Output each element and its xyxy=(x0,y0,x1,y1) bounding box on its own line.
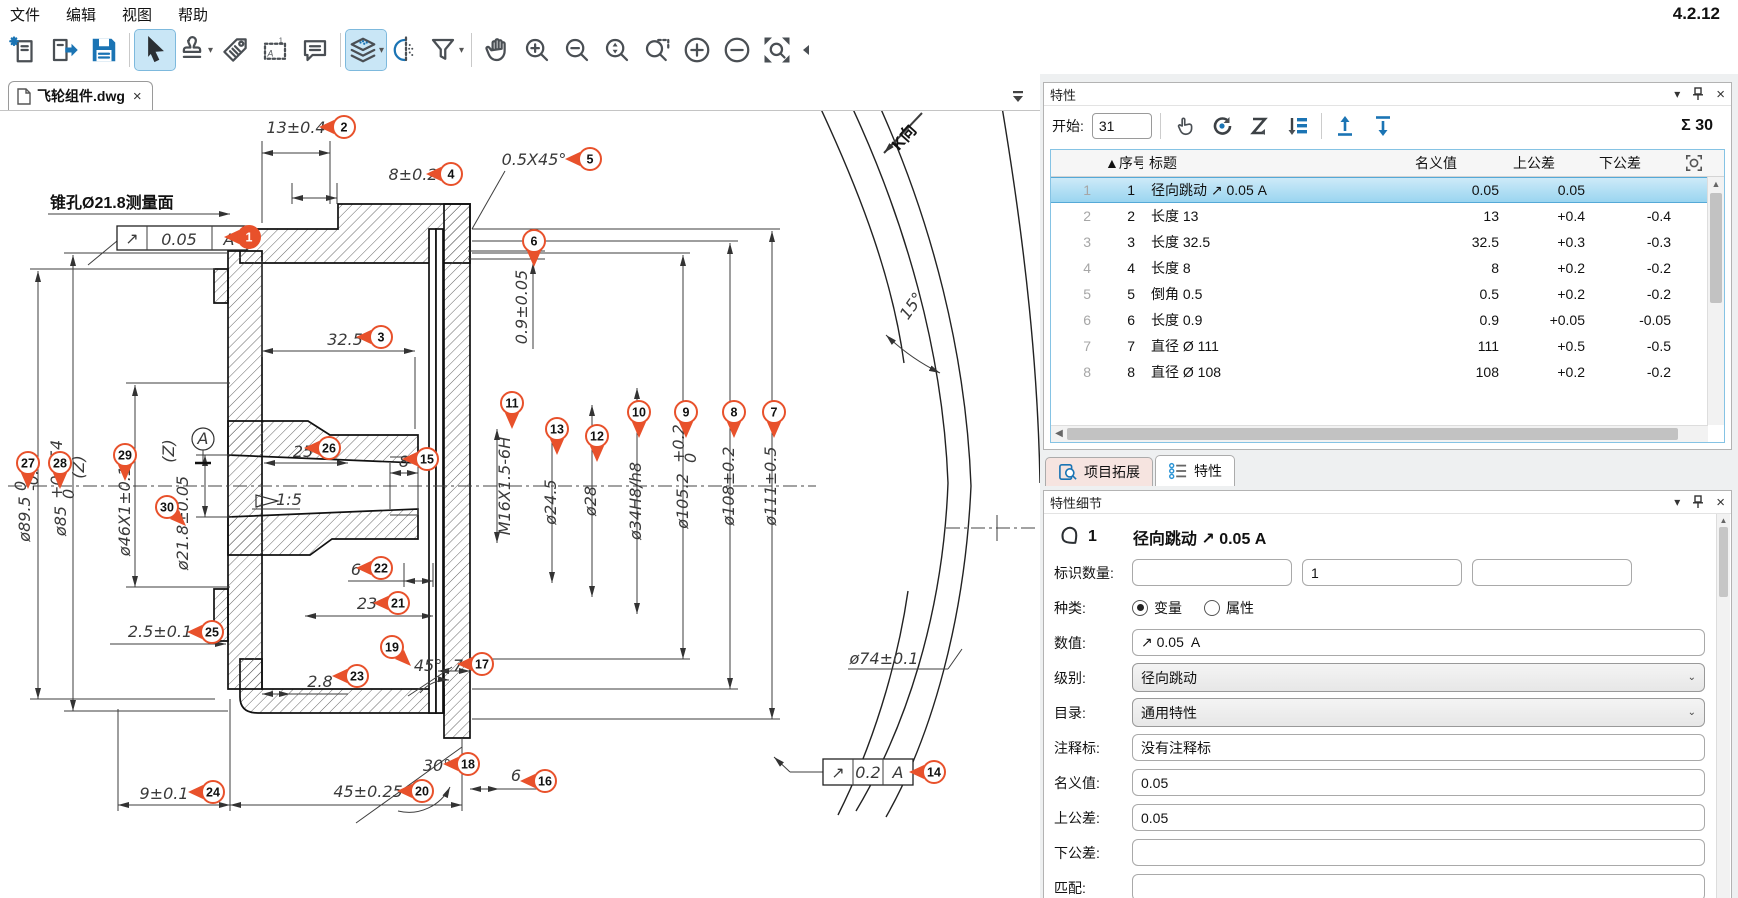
select-cursor-icon xyxy=(140,35,170,65)
balloon-10[interactable]: 10 xyxy=(628,401,650,438)
increase-button[interactable] xyxy=(677,30,717,70)
characteristics-panel-titlebar: 特性 ▾ × xyxy=(1044,83,1731,106)
characteristics-list-icon xyxy=(1168,462,1188,480)
zoom-selection-icon xyxy=(602,35,632,65)
pick-hand-icon xyxy=(1173,115,1195,137)
zoom-in-icon xyxy=(522,35,552,65)
import-down-button[interactable] xyxy=(1368,112,1398,140)
balloon-21[interactable]: 21 xyxy=(373,592,409,614)
dim-text: 45±0.25 xyxy=(333,782,402,801)
column-seq[interactable]: ▲序号 xyxy=(1099,150,1143,176)
table-row-8[interactable]: 88直径 Ø 108108+0.2-0.2 xyxy=(1051,359,1724,385)
dim-text: 45° xyxy=(414,656,442,675)
table-horizontal-scrollbar[interactable]: ◀ xyxy=(1051,425,1708,442)
dim-text: ø24.5 xyxy=(541,479,560,525)
renumber-list-button[interactable] xyxy=(1283,112,1313,140)
balloon-23[interactable]: 23 xyxy=(332,665,368,687)
renumber-zigzag-button[interactable] xyxy=(1245,112,1275,140)
start-number-input[interactable] xyxy=(1092,113,1152,139)
region-note-tool-button[interactable]: A 1 xyxy=(255,30,295,70)
svg-text:9: 9 xyxy=(683,406,690,420)
catalog-select[interactable]: 通用特性⌄ xyxy=(1132,698,1705,727)
stamp-dropdown-caret[interactable]: ▾ xyxy=(208,45,213,56)
layers-icon xyxy=(348,35,378,65)
dim-text: 6 xyxy=(511,766,521,785)
column-upper[interactable]: 上公差 xyxy=(1507,150,1593,176)
dim-text: (Z) xyxy=(69,455,88,478)
svg-text:19: 19 xyxy=(385,641,399,655)
decrease-button[interactable] xyxy=(717,30,757,70)
match-input[interactable] xyxy=(1132,874,1705,898)
svg-text:10: 10 xyxy=(632,406,646,420)
dim-text: M16X1.5-6H xyxy=(495,437,514,536)
pan-hand-icon xyxy=(482,35,512,65)
balloon-13[interactable]: 13 xyxy=(546,418,568,455)
balloon-7[interactable]: 7 xyxy=(763,401,785,438)
dim-text: ø34H8/h8 xyxy=(626,462,645,541)
increase-icon xyxy=(682,35,712,65)
dim-text: 13±0.4 xyxy=(266,118,325,137)
pan-hand-button[interactable] xyxy=(477,30,517,70)
svg-text:13: 13 xyxy=(550,423,564,437)
document-tab-title: 飞轮组件.dwg xyxy=(37,86,125,106)
dim-text: ø85 xyxy=(51,506,70,537)
detail-panel-title: 特性细节 xyxy=(1050,493,1102,512)
column-lower[interactable]: 下公差 xyxy=(1593,150,1679,176)
dim-text: ø105.2 xyxy=(673,473,692,530)
table-row-5[interactable]: 55倒角 0.50.5+0.2-0.2 xyxy=(1051,281,1724,307)
balloon-12[interactable]: 12 xyxy=(586,425,608,462)
collapse-toolbar-button[interactable] xyxy=(797,30,815,70)
pick-hand-button[interactable] xyxy=(1169,112,1199,140)
svg-text:1: 1 xyxy=(279,36,283,45)
renumber-rotate-button[interactable] xyxy=(1207,112,1237,140)
region-note-icon: A 1 xyxy=(260,35,290,65)
svg-text:17: 17 xyxy=(475,658,489,672)
dim-text: 0.9±0.05 xyxy=(512,270,531,344)
export-up-button[interactable] xyxy=(1330,112,1360,140)
column-title[interactable]: 标题 xyxy=(1143,150,1409,176)
svg-text:28: 28 xyxy=(53,457,67,471)
table-row-1[interactable]: 11径向跳动 ↗ 0.05 A0.050.05 xyxy=(1051,177,1724,203)
svg-text:7: 7 xyxy=(771,406,778,420)
k-view-arcs xyxy=(820,111,1040,817)
new-document-icon xyxy=(9,35,39,65)
lower-tolerance-input[interactable] xyxy=(1132,839,1705,866)
field-upper: 上公差: xyxy=(1054,803,1705,832)
dim-text: 2.5±0.1 xyxy=(128,622,192,641)
dim-text: ↗ xyxy=(125,229,138,248)
engineering-drawing: 13±0.48±0.20.5X45°锥孔Ø21.8测量面↗0.05A0.9±0.… xyxy=(0,111,1040,898)
menu-bar: 文件编辑视图帮助 4.2.12 xyxy=(0,0,1738,26)
layers-tool-button[interactable]: ▾ xyxy=(346,30,386,70)
table-row-7[interactable]: 77直径 Ø 111111+0.5-0.5 xyxy=(1051,333,1724,359)
svg-text:11: 11 xyxy=(505,397,518,411)
balloon-8[interactable]: 8 xyxy=(723,401,745,438)
dim-text: K向 xyxy=(888,121,921,154)
svg-text:1: 1 xyxy=(246,231,253,245)
balloon-5[interactable]: 5 xyxy=(565,148,601,170)
detail-item-number: 1 xyxy=(1088,528,1097,546)
svg-text:18: 18 xyxy=(461,758,475,772)
dim-text: ø74±0.1 xyxy=(849,649,919,668)
panel-menu-caret-icon[interactable]: ▾ xyxy=(1674,495,1680,509)
app-version: 4.2.12 xyxy=(1673,4,1728,24)
zoom-out-icon xyxy=(562,35,592,65)
zoom-window-icon xyxy=(642,35,672,65)
document-tab[interactable]: 飞轮组件.dwg × xyxy=(8,81,153,110)
stamp-icon xyxy=(177,35,207,65)
nominal-input[interactable] xyxy=(1132,769,1705,796)
open-document-button[interactable] xyxy=(44,30,84,70)
dim-text: ø28 xyxy=(581,486,600,517)
field-match: 匹配: xyxy=(1054,873,1705,898)
decrease-icon xyxy=(722,35,752,65)
value-input[interactable] xyxy=(1132,629,1705,656)
pin-icon[interactable] xyxy=(1692,495,1704,509)
field-nominal: 名义值: xyxy=(1054,768,1705,797)
drawing-viewport[interactable]: 13±0.48±0.20.5X45°锥孔Ø21.8测量面↗0.05A0.9±0.… xyxy=(0,111,1040,898)
close-panel-icon[interactable]: × xyxy=(1716,86,1725,103)
svg-text:A: A xyxy=(267,48,274,58)
dim-text: 25 xyxy=(293,442,313,461)
svg-text:29: 29 xyxy=(118,449,132,463)
svg-text:26: 26 xyxy=(322,442,336,456)
upper-tolerance-input[interactable] xyxy=(1132,804,1705,831)
zoom-window-button[interactable] xyxy=(637,30,677,70)
balloon-25[interactable]: 25 xyxy=(187,621,223,643)
zoom-in-button[interactable] xyxy=(517,30,557,70)
stamp-tool-button[interactable]: ▾ xyxy=(175,30,215,70)
filter-tool-button[interactable]: ▾ xyxy=(426,30,466,70)
balloon-22[interactable]: 22 xyxy=(356,557,392,579)
detail-item-header: 1 径向跳动 ↗ 0.05 A xyxy=(1058,522,1705,552)
svg-text:21: 21 xyxy=(391,597,405,611)
table-body: 11径向跳动 ↗ 0.05 A0.050.0522长度 1313+0.4-0.4… xyxy=(1051,177,1724,385)
svg-text:8: 8 xyxy=(731,406,738,420)
characteristics-panel-title: 特性 xyxy=(1050,85,1076,104)
tab-characteristics[interactable]: 特性 xyxy=(1155,455,1235,486)
locate-column-icon[interactable] xyxy=(1679,150,1719,176)
characteristics-panel: 特性 ▾ × 开始: xyxy=(1043,82,1732,450)
tag-icon xyxy=(220,35,250,65)
export-up-icon xyxy=(1333,114,1357,138)
renumber-zigzag-icon xyxy=(1248,114,1272,138)
svg-text:25: 25 xyxy=(205,626,219,640)
table-header: ▲序号 标题 名义值 上公差 下公差 xyxy=(1051,150,1724,177)
svg-text:16: 16 xyxy=(538,775,552,789)
table-row-2[interactable]: 22长度 1313+0.4-0.4 xyxy=(1051,203,1724,229)
id-count-input-2[interactable] xyxy=(1302,559,1462,586)
balloon-14[interactable]: 14 xyxy=(909,761,945,783)
svg-text:30: 30 xyxy=(160,501,174,515)
dim-text: (Z) xyxy=(159,439,178,462)
dim-text: ø108±0.2 xyxy=(719,446,738,526)
svg-text:24: 24 xyxy=(206,786,220,800)
dim-text: 锥孔Ø21.8测量面 xyxy=(50,193,174,212)
dim-text: 0.05 xyxy=(161,230,197,249)
detail-vertical-scrollbar[interactable]: ▲ xyxy=(1716,514,1730,898)
tag-tool-button[interactable] xyxy=(215,30,255,70)
field-note: 注释标: xyxy=(1054,733,1705,762)
collapse-arrow-icon xyxy=(801,44,811,56)
menu-item-1[interactable]: 编辑 xyxy=(66,4,96,25)
zoom-selection-button[interactable] xyxy=(597,30,637,70)
panel-menu-caret-icon[interactable]: ▾ xyxy=(1674,87,1680,101)
save-button[interactable] xyxy=(84,30,124,70)
balloon-11[interactable]: 11 xyxy=(501,392,523,429)
svg-text:14: 14 xyxy=(927,766,941,780)
svg-text:23: 23 xyxy=(350,670,364,684)
dim-text: 2.8 xyxy=(307,672,332,691)
sum-count: Σ 30 xyxy=(1681,117,1723,135)
svg-text:2: 2 xyxy=(341,121,348,135)
dim-text: 0 xyxy=(681,453,700,463)
comment-icon xyxy=(300,35,330,65)
id-count-input-1[interactable] xyxy=(1132,559,1292,586)
zoom-out-button[interactable] xyxy=(557,30,597,70)
filter-icon xyxy=(428,35,458,65)
characteristics-toolbar: 开始: xyxy=(1044,106,1731,146)
start-label: 开始: xyxy=(1052,116,1084,136)
table-row-3[interactable]: 33长度 32.532.5+0.3-0.3 xyxy=(1051,229,1724,255)
import-down-icon xyxy=(1371,114,1395,138)
layers-dropdown-caret[interactable]: ▾ xyxy=(379,45,384,56)
radio-variable[interactable]: 变量 xyxy=(1132,598,1182,618)
dim-text: 0 xyxy=(59,489,78,499)
field-lower: 下公差: xyxy=(1054,838,1705,867)
detail-panel-titlebar: 特性细节 ▾ × xyxy=(1044,491,1731,514)
close-panel-icon[interactable]: × xyxy=(1716,494,1725,511)
balloon-24[interactable]: 24 xyxy=(188,781,224,803)
document-icon xyxy=(17,88,31,105)
svg-text:12: 12 xyxy=(590,430,604,444)
dim-text: 32.5 xyxy=(327,330,363,349)
mirror-view-tool-button[interactable] xyxy=(386,30,426,70)
column-nominal[interactable]: 名义值 xyxy=(1409,150,1507,176)
svg-text:20: 20 xyxy=(415,785,429,799)
svg-text:4: 4 xyxy=(448,168,455,182)
field-value: 数值: xyxy=(1054,628,1705,657)
table-row-6[interactable]: 66长度 0.90.9+0.05-0.05 xyxy=(1051,307,1724,333)
svg-text:6: 6 xyxy=(531,235,538,249)
select-cursor-button[interactable] xyxy=(135,30,175,70)
balloon-tag-icon xyxy=(1058,526,1080,548)
table-vertical-scrollbar[interactable]: ▲ xyxy=(1707,177,1724,425)
dim-text: A xyxy=(197,429,209,448)
balloon-6[interactable]: 6 xyxy=(523,230,545,267)
menu-item-2[interactable]: 视图 xyxy=(122,4,152,25)
renumber-list-icon xyxy=(1286,114,1310,138)
id-count-input-3[interactable] xyxy=(1472,559,1632,586)
svg-text:27: 27 xyxy=(21,457,35,471)
k-view-centerline xyxy=(946,515,1038,541)
radio-attribute[interactable]: 属性 xyxy=(1204,598,1254,618)
dim-text: ø89.5 xyxy=(15,496,34,542)
tab-close-button[interactable]: × xyxy=(133,88,142,105)
tab-project-expand[interactable]: 项目拓展 xyxy=(1045,457,1153,486)
dim-text: ø111±0.5 xyxy=(761,446,780,526)
svg-text:15: 15 xyxy=(420,453,434,467)
renumber-rotate-icon xyxy=(1210,114,1234,138)
pin-icon[interactable] xyxy=(1692,87,1704,101)
menu-item-0[interactable]: 文件 xyxy=(10,4,40,25)
new-document-button[interactable] xyxy=(4,30,44,70)
dim-text: 0.2 xyxy=(855,763,880,782)
field-kind: 种类: 变量 属性 xyxy=(1054,593,1705,622)
comment-tool-button[interactable] xyxy=(295,30,335,70)
level-select[interactable]: 径向跳动⌄ xyxy=(1132,663,1705,692)
balloon-19[interactable]: 19 xyxy=(381,636,411,666)
characteristics-table: ▲序号 标题 名义值 上公差 下公差 11径向跳动 ↗ 0.05 A0.050.… xyxy=(1050,149,1725,443)
field-id-count: 标识数量: xyxy=(1054,558,1705,587)
drawing-canvas-area: 飞轮组件.dwg × xyxy=(0,74,1040,898)
dim-text: 1:5 xyxy=(276,490,302,509)
characteristic-detail-panel: 特性细节 ▾ × 1 径向跳动 ↗ 0.05 xyxy=(1043,490,1732,898)
svg-text:3: 3 xyxy=(378,331,385,345)
field-level: 级别: 径向跳动⌄ xyxy=(1054,663,1705,692)
save-icon xyxy=(89,35,119,65)
main-toolbar: ▾ A 1 ▾ ▾ xyxy=(0,26,1738,74)
dim-text: ↗ xyxy=(831,763,844,782)
svg-text:5: 5 xyxy=(587,153,594,167)
tab-list-button[interactable] xyxy=(1010,88,1026,104)
dim-text: 9±0.1 xyxy=(139,784,188,803)
svg-text:22: 22 xyxy=(374,562,388,576)
dim-text: 0.5X45° xyxy=(502,150,567,169)
dim-text: 15° xyxy=(896,289,928,323)
panel-tab-strip: 项目拓展 特性 xyxy=(1043,456,1235,486)
zoom-extents-button[interactable] xyxy=(757,30,797,70)
note-input[interactable] xyxy=(1132,734,1705,761)
document-tab-bar: 飞轮组件.dwg × xyxy=(0,80,1040,111)
project-expand-icon xyxy=(1058,463,1078,481)
open-document-icon xyxy=(49,35,79,65)
mirror-view-icon xyxy=(391,35,421,65)
table-row-4[interactable]: 44长度 88+0.2-0.2 xyxy=(1051,255,1724,281)
field-catalog: 目录: 通用特性⌄ xyxy=(1054,698,1705,727)
zoom-extents-icon xyxy=(762,35,792,65)
detail-item-title: 径向跳动 ↗ 0.05 A xyxy=(1133,525,1266,549)
dim-text: A xyxy=(892,763,904,782)
filter-dropdown-caret[interactable]: ▾ xyxy=(459,45,464,56)
menu-item-3[interactable]: 帮助 xyxy=(178,4,208,25)
